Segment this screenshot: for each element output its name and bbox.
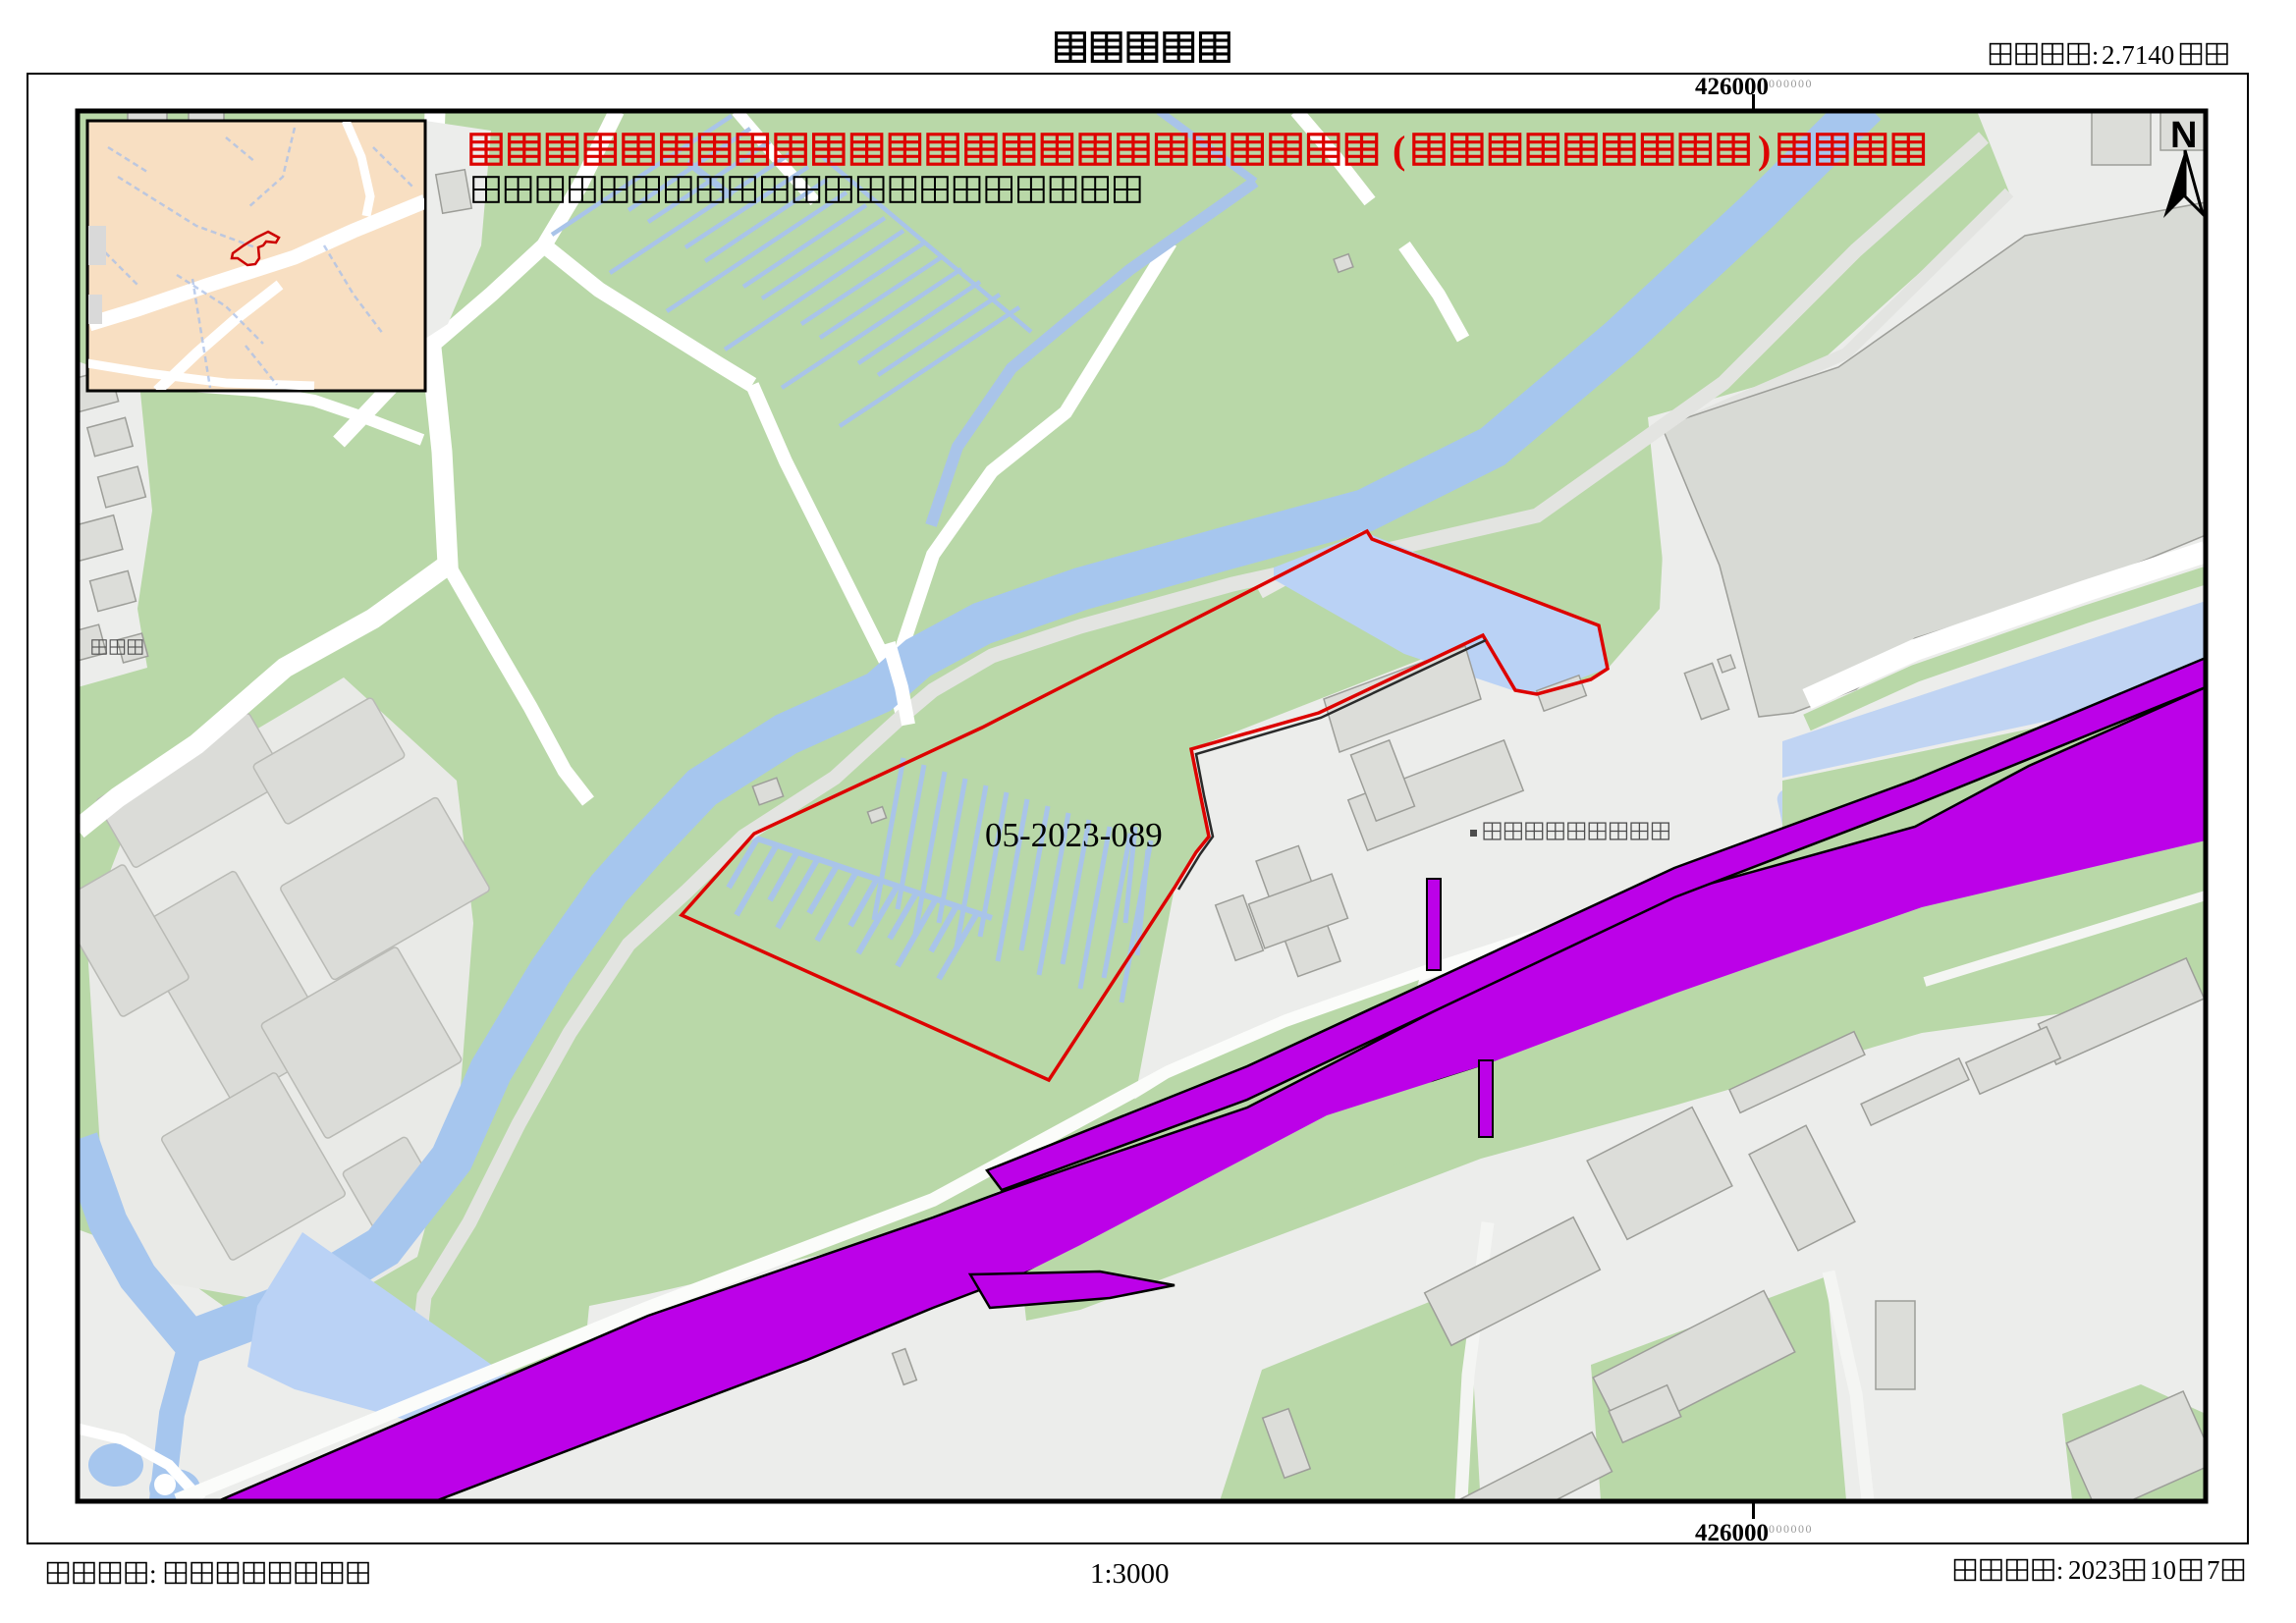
svg-text:2023: 2023 — [2068, 1555, 2121, 1585]
svg-text:426000: 426000 — [1695, 74, 1769, 100]
svg-text:2.7140: 2.7140 — [2102, 40, 2174, 70]
svg-text:7: 7 — [2207, 1555, 2220, 1585]
svg-text::: : — [2056, 1556, 2063, 1585]
svg-text::: : — [2092, 41, 2099, 70]
svg-text:05-2023-089: 05-2023-089 — [985, 816, 1163, 854]
svg-text:1:3000: 1:3000 — [1090, 1558, 1170, 1590]
svg-text:): ) — [1758, 128, 1771, 172]
svg-text:000000: 000000 — [1769, 77, 1813, 90]
svg-text::: : — [149, 1559, 157, 1589]
svg-text:N: N — [2170, 115, 2197, 156]
svg-text:10: 10 — [2150, 1555, 2176, 1585]
svg-text:000000: 000000 — [1769, 1522, 1813, 1536]
svg-text:(: ( — [1393, 128, 1405, 172]
svg-text:426000: 426000 — [1695, 1520, 1769, 1546]
